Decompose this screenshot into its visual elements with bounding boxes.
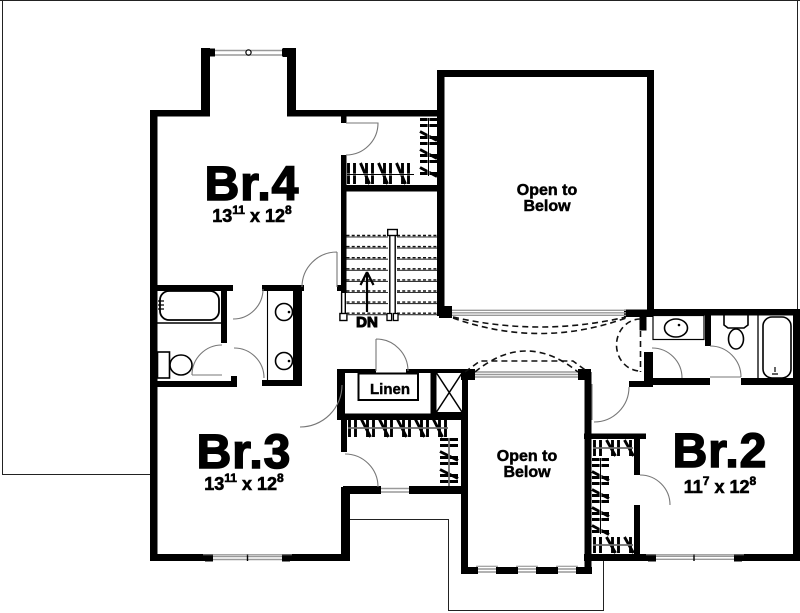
svg-text:Br.2: Br.2 <box>673 425 768 478</box>
svg-text:1311 x 128: 1311 x 128 <box>212 203 292 226</box>
svg-text:DN: DN <box>356 314 378 331</box>
svg-text:Below: Below <box>503 464 551 481</box>
svg-text:Below: Below <box>523 198 571 215</box>
svg-text:117 x 128: 117 x 128 <box>684 474 757 497</box>
svg-text:1311 x 128: 1311 x 128 <box>204 471 284 494</box>
svg-text:Open to: Open to <box>497 448 558 465</box>
svg-text:Open to: Open to <box>517 182 578 199</box>
svg-text:Linen: Linen <box>370 381 410 398</box>
